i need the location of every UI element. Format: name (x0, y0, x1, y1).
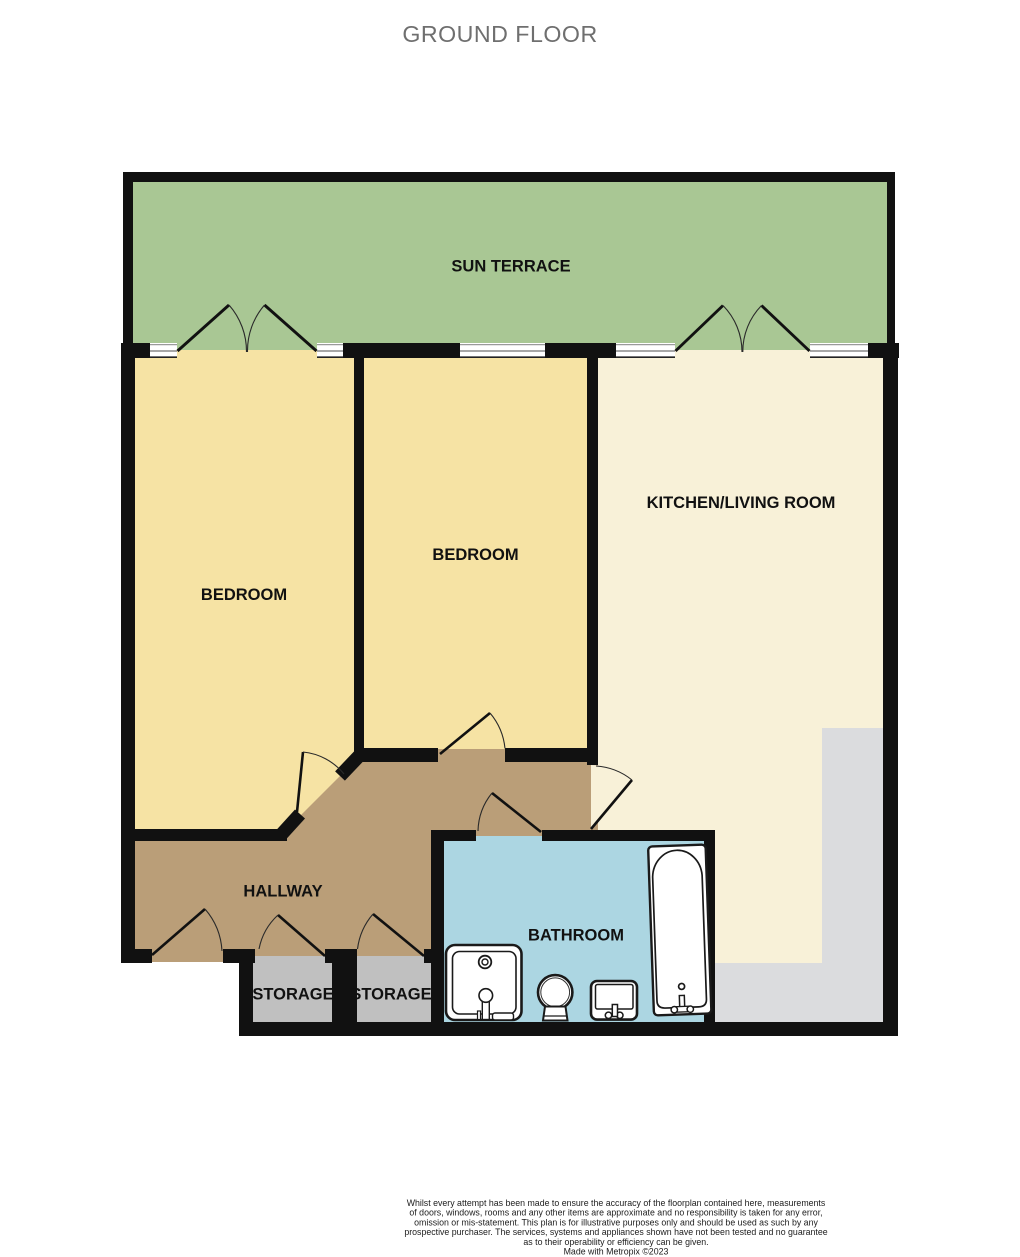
svg-text:as to their operability or eff: as to their operability or efficiency ca… (523, 1237, 708, 1247)
svg-text:BATHROOM: BATHROOM (528, 927, 624, 945)
svg-text:GROUND FLOOR: GROUND FLOOR (402, 21, 597, 47)
svg-text:prospective purchaser. The ser: prospective purchaser. The services, sys… (404, 1227, 827, 1237)
svg-text:BEDROOM: BEDROOM (201, 586, 287, 604)
svg-text:HALLWAY: HALLWAY (243, 883, 322, 901)
svg-text:of doors, windows, rooms and a: of doors, windows, rooms and any other i… (409, 1208, 822, 1218)
svg-text:BEDROOM: BEDROOM (432, 546, 518, 564)
svg-text:STORAGE: STORAGE (252, 986, 333, 1004)
svg-text:omission or mis-statement. Thi: omission or mis-statement. This plan is … (414, 1217, 818, 1227)
svg-text:Made with Metropix ©2023: Made with Metropix ©2023 (564, 1247, 669, 1257)
svg-text:SUN TERRACE: SUN TERRACE (451, 258, 570, 276)
svg-text:KITCHEN/LIVING ROOM: KITCHEN/LIVING ROOM (647, 494, 836, 512)
svg-text:STORAGE: STORAGE (350, 986, 431, 1004)
svg-text:Whilst every attempt has been: Whilst every attempt has been made to en… (407, 1198, 826, 1208)
